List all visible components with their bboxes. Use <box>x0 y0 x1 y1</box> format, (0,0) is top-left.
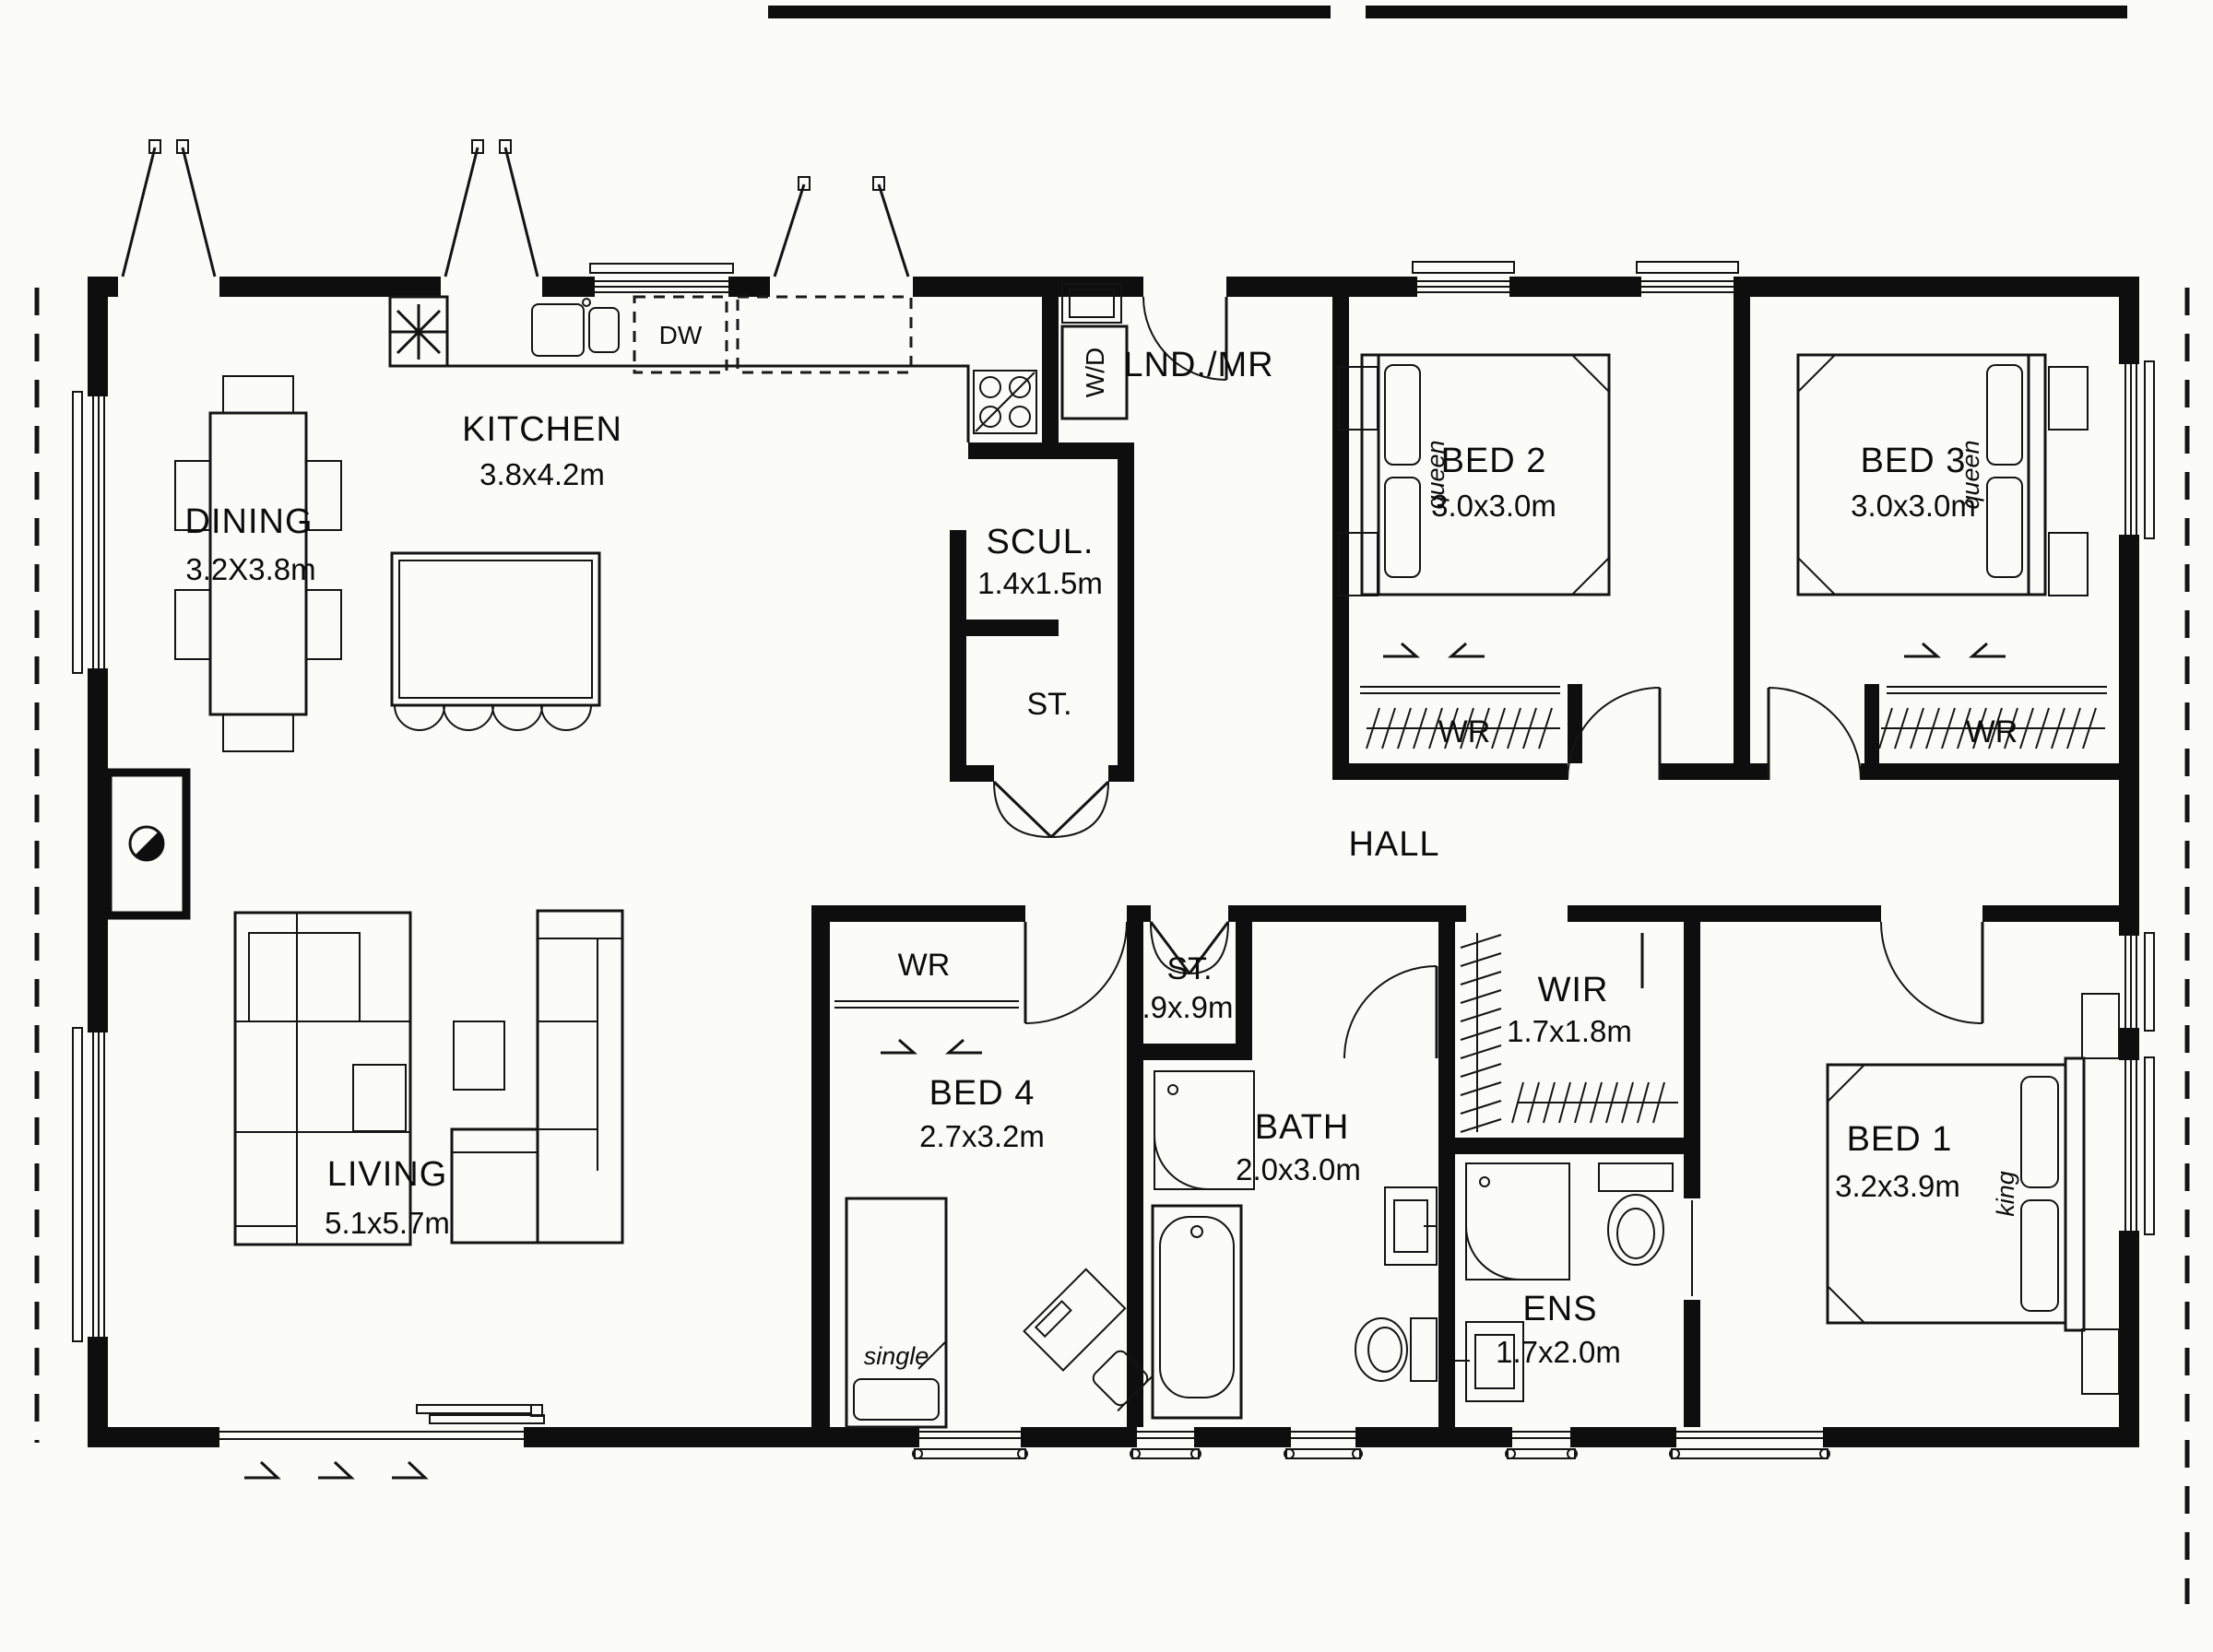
living-window <box>73 1028 104 1341</box>
room-label-bed2: BED 2 <box>1441 442 1547 480</box>
roof-outline <box>768 6 2127 18</box>
room-label-scullery: SCUL. <box>987 523 1095 561</box>
room-dims-dining: 3.2X3.8m <box>185 552 315 586</box>
door-swing-arrows <box>1904 643 2006 656</box>
laundry-fittings: W/D <box>1062 284 1127 419</box>
side-table <box>454 1021 504 1090</box>
room-label-ens: ENS <box>1522 1290 1597 1328</box>
ens-shower <box>1466 1163 1569 1280</box>
stacker-slider-door <box>219 1405 544 1478</box>
room-label-hall: HALL <box>1348 825 1439 864</box>
room-label-living: LIVING <box>327 1155 448 1194</box>
room-dims-store-lower: .9x.9m <box>1142 990 1233 1024</box>
pillow <box>1385 478 1420 577</box>
sofa-left <box>235 913 410 1245</box>
bed3-door <box>1769 688 1861 780</box>
stove-symbol <box>391 304 446 360</box>
room-dims-bed3: 3.0x3.0m <box>1851 489 1976 523</box>
bed3-window <box>1637 262 1738 292</box>
dining-chair <box>306 590 341 659</box>
fireplace <box>108 773 186 915</box>
dining-chair <box>175 590 210 659</box>
dining-window <box>73 392 104 673</box>
headboard <box>2065 1058 2084 1330</box>
bath-vanity <box>1385 1187 1437 1265</box>
door-swing-arrows <box>881 1040 982 1053</box>
dining-chair <box>223 376 293 413</box>
windows <box>73 262 2154 1458</box>
hanging-rail-horizontal <box>1512 1082 1678 1123</box>
room-dims-bed4: 2.7x3.2m <box>919 1119 1045 1153</box>
kitchen-island <box>392 553 599 730</box>
pantry-bench-dashed <box>738 297 911 372</box>
pillow <box>1987 478 2022 577</box>
store-upper-double-doors <box>994 782 1108 837</box>
room-label-store-lower: ST. <box>1166 951 1212 986</box>
bed4-door <box>1025 922 1127 1023</box>
bathtub <box>1153 1206 1241 1418</box>
pillow <box>854 1379 939 1420</box>
room-dims-bed1: 3.2x3.9m <box>1835 1169 1960 1203</box>
room-dims-living: 5.1x5.7m <box>325 1206 450 1240</box>
room-dims-bed2: 3.0x3.0m <box>1431 489 1556 523</box>
room-dims-scullery: 1.4x1.5m <box>977 566 1103 600</box>
wardrobe-label-bed2: WR <box>1438 714 1491 749</box>
bed4-size-label: single <box>864 1342 929 1370</box>
washer-dryer-label: W/D <box>1081 348 1109 397</box>
floor-plan: DW W/D <box>0 0 2213 1652</box>
headboard <box>2029 355 2045 595</box>
ens-toilet <box>1599 1163 1673 1265</box>
kitchen-fittings: DW <box>390 297 1036 730</box>
slide-arrow <box>244 1462 278 1478</box>
bath-door <box>1344 966 1437 1058</box>
kitchen-window <box>590 264 733 292</box>
room-label-bed4: BED 4 <box>929 1074 1035 1113</box>
pillow <box>1385 365 1420 465</box>
hanging-rail-vertical <box>1461 933 1501 1132</box>
room-label-store-upper: ST. <box>1026 687 1071 722</box>
wardrobe-label-bed4: WR <box>898 948 951 983</box>
floor-plan-page: DW W/D <box>0 0 2213 1652</box>
pillow <box>2021 1077 2058 1187</box>
bed4-wardrobe <box>834 1001 1019 1008</box>
sofa-right <box>452 911 622 1243</box>
room-label-bed1: BED 1 <box>1847 1120 1953 1159</box>
door-swing-arrows <box>1383 643 1485 656</box>
coffee-table <box>353 1065 406 1131</box>
room-label-wir: WIR <box>1538 971 1609 1009</box>
cooktop <box>974 371 1036 433</box>
bedside-table <box>2082 994 2119 1058</box>
dishwasher: DW <box>634 297 727 372</box>
bed1-window <box>2125 1057 2154 1234</box>
dining-chair <box>223 714 293 751</box>
pillow <box>2021 1200 2058 1311</box>
room-label-dining: DINING <box>185 502 314 541</box>
room-label-kitchen: KITCHEN <box>462 410 622 449</box>
room-label-bath: BATH <box>1255 1108 1350 1147</box>
living-furniture <box>235 911 622 1245</box>
bed1-entry-window <box>2125 933 2154 1031</box>
bed3-side-window <box>2125 361 2154 538</box>
bed1-door <box>1881 922 1982 1023</box>
room-dims-ens: 1.7x2.0m <box>1496 1335 1621 1369</box>
slide-arrow <box>318 1462 351 1478</box>
room-dims-bath: 2.0x3.0m <box>1236 1152 1361 1186</box>
bedside-table <box>2082 1329 2119 1394</box>
desk <box>1024 1269 1126 1371</box>
bed1-size-label: king <box>1992 1171 2019 1217</box>
bedside-table <box>2049 533 2088 596</box>
slide-arrow <box>392 1462 425 1478</box>
single-bed <box>846 1198 946 1427</box>
bifold-doors <box>123 140 908 277</box>
bath-toilet <box>1355 1318 1437 1381</box>
wardrobe-label-bed3: WR <box>1966 714 2018 749</box>
island-stools <box>395 705 591 730</box>
room-label-bed3: BED 3 <box>1861 442 1967 480</box>
pillow <box>1987 365 2022 465</box>
bed2-window <box>1413 262 1514 292</box>
bedside-table <box>2049 367 2088 430</box>
headboard <box>1362 355 1379 595</box>
kitchen-sink <box>532 299 619 356</box>
room-label-laundry: LND./MR <box>1123 346 1273 384</box>
dishwasher-label: DW <box>659 321 703 349</box>
room-dims-wir: 1.7x1.8m <box>1507 1014 1632 1048</box>
room-dims-kitchen: 3.8x4.2m <box>479 457 605 491</box>
